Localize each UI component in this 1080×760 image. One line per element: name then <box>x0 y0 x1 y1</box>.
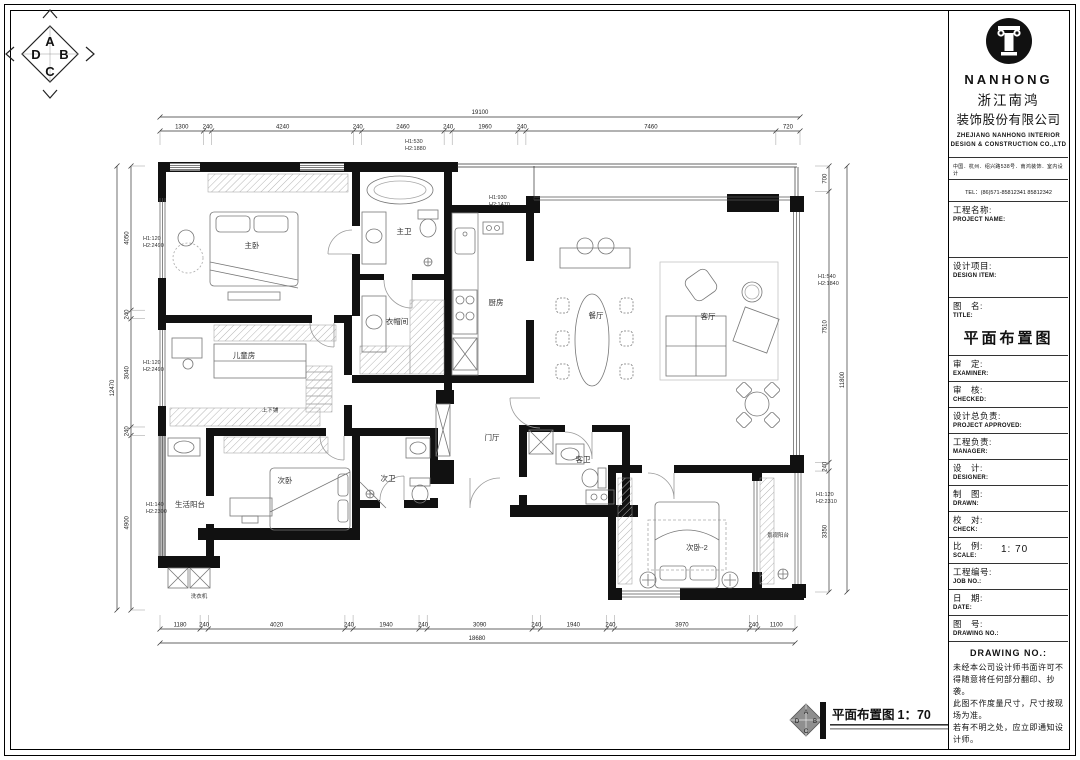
room-label-cloakroom: 衣帽间 <box>386 316 409 326</box>
room-label-master-bedroom: 主卧 <box>245 240 260 250</box>
footer-drawing-title: 平面布置图1：70 <box>832 707 931 722</box>
notes-header: DRAWING NO.: <box>953 648 1064 658</box>
field-checked-en: CHECKED: <box>953 397 1064 403</box>
dim-line: 1180240402024019402403090240194024039702… <box>158 615 798 646</box>
dim-label: 1300 <box>175 125 189 131</box>
field-examiner: 审 定: EXAMINER: <box>949 356 1068 382</box>
dim-label: 4050 <box>125 231 131 245</box>
compass-b: B <box>59 47 68 62</box>
dim-label: 240 <box>517 125 528 131</box>
field-design-item: 设计项目: DESIGN ITEM: <box>949 258 1068 298</box>
field-drawn: 制 图: DRAWN: <box>949 486 1068 512</box>
notes-text: 未经本公司设计师书面许可不得随意将任何部分翻印、抄袭。 此图不作度量尺寸，尺寸按… <box>953 662 1064 746</box>
company-name-cn2: 装饰股份有限公司 <box>949 109 1068 128</box>
field-drawing-no: 图 号: DRAWING NO.: <box>949 616 1068 642</box>
height-annotation: H1:930H2:1470 <box>489 195 510 208</box>
footer-marker-b: B <box>813 719 817 725</box>
room-label-view-balcony: 景观阳台 <box>767 531 790 539</box>
company-logo-icon <box>985 17 1033 65</box>
footer-marker-d: D <box>795 719 800 725</box>
dim-label: 240 <box>344 623 355 629</box>
dim-label: 4020 <box>270 623 284 629</box>
field-drawing-title: 图 名: TITLE: 平面布置图 <box>949 298 1068 356</box>
dim-label: 240 <box>353 125 364 131</box>
height-annotation: H1:120H2:2490 <box>143 360 164 373</box>
field-project-name-en: PROJECT NAME: <box>953 217 1064 223</box>
company-tel: TEL：(86)571-85812341 85812342 <box>965 188 1052 196</box>
room-label-bath2: 次卫 <box>381 473 396 483</box>
company-name-cn1: 浙江南鸿 <box>949 89 1068 109</box>
height-annotation: H1:120H2:2490 <box>143 236 164 249</box>
floor-plan-svg: A B C D <box>0 0 1080 760</box>
room-label-foyer: 门厅 <box>485 433 500 442</box>
dim-label: 1940 <box>567 623 581 629</box>
field-project-approved-en: PROJECT APPROVED: <box>953 423 1064 429</box>
height-annotation: H1:540H2:1840 <box>818 274 839 287</box>
field-drawn-en: DRAWN: <box>953 501 1064 507</box>
field-title-cn: 图 名: <box>953 300 1064 312</box>
dim-label: 700 <box>823 173 829 184</box>
field-project-name: 工程名称: PROJECT NAME: <box>949 202 1068 258</box>
drawing-title-value: 平面布置图 <box>953 327 1064 348</box>
footer-label-group: A B C D 平面布置图1：70 <box>790 702 948 739</box>
field-designer-en: DESIGNER: <box>953 475 1064 481</box>
field-project-approved-cn: 设计总负责: <box>953 410 1064 422</box>
room-label-guest-bath: 客卫 <box>576 454 591 464</box>
dim-label: 19100 <box>472 110 489 116</box>
field-date-en: DATE: <box>953 605 1064 611</box>
dim-label: 11800 <box>840 371 846 388</box>
room-label-washer: 洗衣机 <box>191 592 208 600</box>
field-check: 校 对: CHECK: <box>949 512 1068 538</box>
dim-label: 240 <box>605 623 616 629</box>
field-drawing-no-cn: 图 号: <box>953 618 1064 630</box>
dim-label: 18680 <box>469 636 486 642</box>
dim-label: 12470 <box>110 379 116 396</box>
footer-marker-a: A <box>804 710 808 716</box>
field-title-en: TITLE: <box>953 313 1064 319</box>
compass-c: C <box>45 64 55 79</box>
dim-label: 1100 <box>770 623 784 629</box>
dim-label: 3040 <box>125 366 131 380</box>
height-annotation: H1:140H2:2300 <box>146 502 167 515</box>
height-annotation: H1:530H2:1880 <box>405 139 426 152</box>
company-name-en: NANHONG <box>949 72 1068 87</box>
dim-line: 40502403040240490012470 <box>110 164 145 613</box>
field-project-name-cn: 工程名称: <box>953 204 1064 216</box>
field-examiner-cn: 审 定: <box>953 358 1064 370</box>
field-design-item-en: DESIGN ITEM: <box>953 273 1064 279</box>
field-drawn-cn: 制 图: <box>953 488 1064 500</box>
field-check-en: CHECK: <box>953 527 1064 533</box>
field-checked-cn: 审 核: <box>953 384 1064 396</box>
dim-label: 7510 <box>823 320 829 334</box>
field-designer-cn: 设 计: <box>953 462 1064 474</box>
field-checked: 审 核: CHECKED: <box>949 382 1068 408</box>
field-project-approved: 设计总负责: PROJECT APPROVED: <box>949 408 1068 434</box>
dim-label: 7460 <box>644 125 658 131</box>
room-label-bedroom2: 次卧 <box>278 475 293 485</box>
field-job-no-cn: 工程编号: <box>953 566 1064 578</box>
dim-label: 240 <box>443 125 454 131</box>
room-label-master-bath: 主卫 <box>397 226 412 236</box>
field-check-cn: 校 对: <box>953 514 1064 526</box>
room-label-laundry-balcony: 生活阳台 <box>175 499 205 509</box>
field-scale: 比 例: SCALE: 1: 70 <box>949 538 1068 564</box>
dim-label: 1180 <box>174 623 188 629</box>
dim-line: 1300240424024024602401960240746072019100 <box>158 110 803 145</box>
company-address: 中国．杭州．绍兴路538号．南鸿装饰．室内设计 <box>953 163 1064 177</box>
field-manager-cn: 工程负责: <box>953 436 1064 448</box>
room-label-kitchen: 厨房 <box>489 297 504 307</box>
room-label-bunk-bed: 上下铺 <box>262 406 279 414</box>
room-label-bedroom3: 次卧-2 <box>686 542 708 552</box>
dim-label: 240 <box>531 623 542 629</box>
room-label-dining: 餐厅 <box>589 311 604 320</box>
dim-label: 240 <box>125 426 131 437</box>
dim-label: 240 <box>203 125 214 131</box>
room-label-kids-room: 儿童房 <box>233 350 256 360</box>
dim-label: 240 <box>199 623 210 629</box>
dim-label: 3090 <box>473 623 487 629</box>
dim-label: 720 <box>783 125 794 131</box>
field-date: 日 期: DATE: <box>949 590 1068 616</box>
field-job-no-en: JOB NO.: <box>953 579 1064 585</box>
dim-label: 3970 <box>675 623 689 629</box>
dim-label: 2460 <box>396 125 410 131</box>
field-designer: 设 计: DESIGNER: <box>949 460 1068 486</box>
field-manager-en: MANAGER: <box>953 449 1064 455</box>
dim-line: 7007510240335011800 <box>815 164 850 595</box>
dim-label: 240 <box>418 623 429 629</box>
compass-d: D <box>31 47 40 62</box>
room-label-living: 客厅 <box>701 311 716 321</box>
company-sub-en: ZHEJIANG NANHONG INTERIOR DESIGN & CONST… <box>949 132 1068 150</box>
field-design-item-cn: 设计项目: <box>953 260 1064 272</box>
notes-section: DRAWING NO.: 未经本公司设计师书面许可不得随意将任何部分翻印、抄袭。… <box>949 642 1068 749</box>
field-examiner-en: EXAMINER: <box>953 371 1064 377</box>
field-manager: 工程负责: MANAGER: <box>949 434 1068 460</box>
dim-label: 4900 <box>125 515 131 529</box>
title-block: NANHONG 浙江南鸿 装饰股份有限公司 ZHEJIANG NANHONG I… <box>948 11 1068 749</box>
dim-label: 240 <box>125 309 131 320</box>
scale-value: 1: 70 <box>1001 544 1028 555</box>
dim-label: 240 <box>749 623 760 629</box>
company-header: NANHONG 浙江南鸿 装饰股份有限公司 ZHEJIANG NANHONG I… <box>949 11 1068 158</box>
dim-label: 4240 <box>276 125 290 131</box>
compass-icon: A B C D <box>6 10 94 98</box>
compass-a: A <box>45 34 55 49</box>
footer-marker-c: C <box>804 729 809 735</box>
dim-label: 3350 <box>823 524 829 538</box>
dim-label: 1940 <box>379 623 393 629</box>
dim-label: 1960 <box>478 125 492 131</box>
field-drawing-no-en: DRAWING NO.: <box>953 631 1064 637</box>
field-job-no: 工程编号: JOB NO.: <box>949 564 1068 590</box>
height-annotation: H1:120H2:2310 <box>816 492 837 505</box>
field-date-cn: 日 期: <box>953 592 1064 604</box>
dim-label: 240 <box>823 461 829 472</box>
